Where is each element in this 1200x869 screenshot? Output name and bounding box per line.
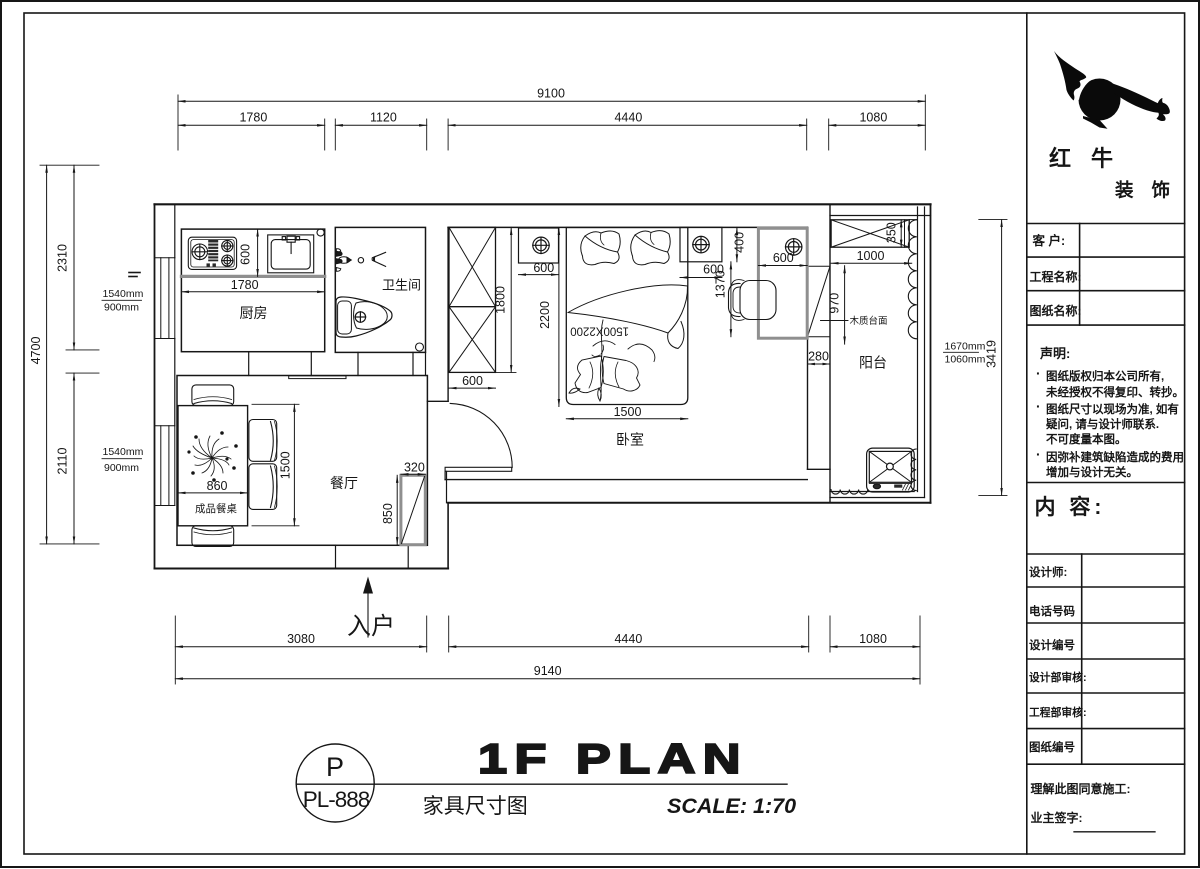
- svg-text:350: 350: [885, 222, 899, 243]
- svg-text:1060mm: 1060mm: [945, 354, 986, 366]
- svg-text:1670mm: 1670mm: [945, 341, 986, 353]
- svg-text:工程名称:: 工程名称:: [1030, 269, 1082, 284]
- svg-text:1540mm: 1540mm: [103, 288, 144, 300]
- svg-text:4440: 4440: [614, 111, 642, 125]
- svg-text:红牛: 红牛: [1049, 146, 1133, 171]
- svg-text:图纸版权归本公司所有,: 图纸版权归本公司所有,: [1046, 369, 1164, 383]
- svg-text:9140: 9140: [534, 664, 562, 678]
- svg-text:家具尺寸图: 家具尺寸图: [423, 795, 528, 818]
- svg-text:900mm: 900mm: [104, 462, 139, 474]
- svg-text:工程部审核:: 工程部审核:: [1029, 705, 1087, 719]
- svg-text:1500X2200: 1500X2200: [570, 324, 629, 336]
- svg-text:1F PLAN: 1F PLAN: [478, 735, 748, 782]
- svg-text:图纸名称:: 图纸名称:: [1030, 303, 1082, 318]
- svg-text:1000: 1000: [857, 249, 885, 263]
- svg-text:3419: 3419: [985, 340, 999, 368]
- svg-text:2110: 2110: [56, 448, 70, 475]
- svg-text:餐厅: 餐厅: [330, 475, 358, 491]
- svg-text:SCALE: 1:70: SCALE: 1:70: [667, 794, 796, 818]
- svg-text:·: ·: [1036, 365, 1041, 381]
- svg-text:600: 600: [462, 374, 483, 388]
- svg-text:1080: 1080: [859, 111, 887, 125]
- svg-text:声明:: 声明:: [1039, 346, 1070, 361]
- svg-text:1780: 1780: [231, 278, 259, 292]
- svg-text:600: 600: [773, 251, 794, 265]
- svg-text:疑问, 请与设计师联系.: 疑问, 请与设计师联系.: [1046, 417, 1159, 431]
- svg-text:增加与设计无关。: 增加与设计无关。: [1046, 465, 1138, 479]
- svg-text:PL-888: PL-888: [303, 787, 370, 812]
- svg-text:1370: 1370: [714, 270, 728, 298]
- svg-text:1540mm: 1540mm: [103, 446, 144, 458]
- svg-text:9100: 9100: [537, 87, 565, 101]
- svg-text:4700: 4700: [29, 337, 43, 365]
- svg-text:不可度量本图。: 不可度量本图。: [1046, 432, 1127, 446]
- svg-text:970: 970: [828, 293, 842, 314]
- svg-text:·: ·: [1036, 398, 1041, 414]
- svg-text:3080: 3080: [287, 632, 315, 646]
- svg-text:业主签字:: 业主签字:: [1031, 810, 1083, 825]
- svg-text:卫生间: 卫生间: [382, 278, 421, 293]
- svg-text:成品餐桌: 成品餐桌: [195, 502, 237, 515]
- svg-text:850: 850: [381, 503, 395, 524]
- svg-text:1780: 1780: [239, 111, 267, 125]
- svg-text:理解此图同意施工:: 理解此图同意施工:: [1031, 781, 1131, 796]
- svg-text:装饰: 装饰: [1114, 180, 1188, 201]
- svg-text:厨房: 厨房: [240, 305, 268, 321]
- svg-text:2310: 2310: [56, 244, 70, 272]
- svg-text:·: ·: [1036, 446, 1041, 462]
- svg-text:木质台面: 木质台面: [850, 315, 888, 327]
- svg-text:1500: 1500: [279, 451, 293, 479]
- svg-text:图纸编号: 图纸编号: [1029, 740, 1075, 754]
- svg-text:1500: 1500: [614, 405, 642, 419]
- svg-text:600: 600: [533, 261, 554, 275]
- svg-text:图纸尺寸以现场为准, 如有: 图纸尺寸以现场为准, 如有: [1046, 402, 1179, 416]
- svg-text:400: 400: [733, 232, 747, 253]
- svg-text:280: 280: [808, 350, 829, 364]
- svg-text:1800: 1800: [494, 286, 508, 314]
- svg-text:2200: 2200: [538, 301, 552, 329]
- svg-text:设计师:: 设计师:: [1029, 565, 1067, 579]
- svg-text:未经授权不得复印、转抄。: 未经授权不得复印、转抄。: [1045, 385, 1184, 399]
- svg-text:860: 860: [207, 479, 228, 493]
- svg-text:阳台: 阳台: [859, 355, 887, 371]
- svg-text:设计部审核:: 设计部审核:: [1029, 670, 1087, 684]
- svg-text:客 户:: 客 户:: [1032, 233, 1066, 248]
- svg-text:电话号码: 电话号码: [1029, 604, 1075, 618]
- svg-text:4440: 4440: [614, 632, 642, 646]
- svg-text:设计编号: 设计编号: [1029, 638, 1075, 652]
- svg-text:1080: 1080: [859, 632, 887, 646]
- svg-text:卧室: 卧室: [616, 432, 644, 448]
- svg-text:1120: 1120: [370, 111, 397, 125]
- svg-text:900mm: 900mm: [104, 302, 139, 314]
- svg-text:320: 320: [404, 461, 425, 475]
- svg-text:因弥补建筑缺陷造成的费用: 因弥补建筑缺陷造成的费用: [1046, 450, 1184, 464]
- svg-text:P: P: [326, 752, 344, 782]
- svg-text:内 容:: 内 容:: [1035, 495, 1106, 519]
- svg-text:入户: 入户: [347, 613, 395, 640]
- svg-text:600: 600: [239, 244, 253, 265]
